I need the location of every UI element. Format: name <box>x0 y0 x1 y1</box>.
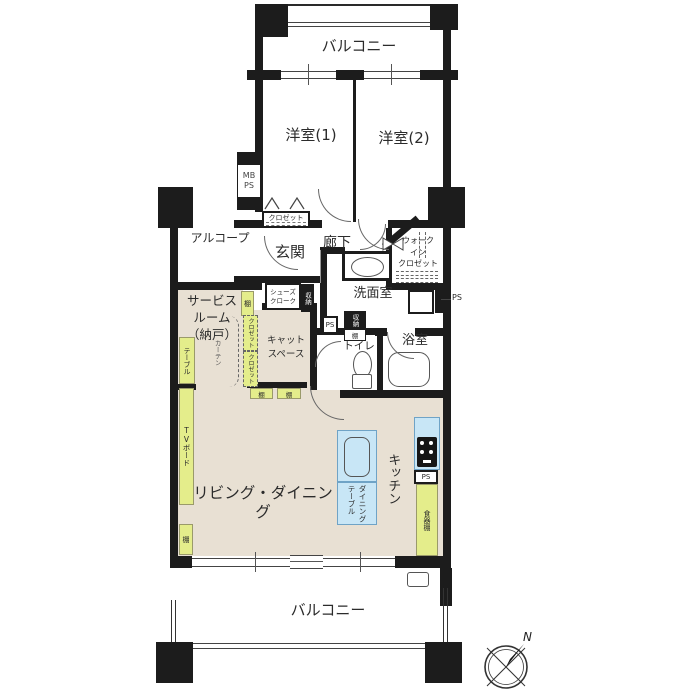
entrance-step-line <box>320 250 321 283</box>
hallway-label: 廊下 <box>312 235 362 253</box>
wall <box>247 70 281 80</box>
shelf-label: 棚 <box>286 389 293 399</box>
stove <box>417 437 437 467</box>
wall <box>255 4 288 37</box>
wall <box>170 225 178 285</box>
wall <box>336 70 364 80</box>
table-label: テーブル <box>182 347 192 375</box>
shelf-label: 棚 <box>352 330 359 340</box>
floor-plan: バルコニー MB PS クロゼ <box>0 0 690 690</box>
compass-n-label: N <box>523 630 532 644</box>
balcony-top-railing <box>288 22 430 27</box>
hanger-icon <box>289 197 305 210</box>
ps-duct-washroom <box>408 290 434 314</box>
bedroom2-label: 洋室(2) <box>360 129 448 148</box>
window-tick <box>255 552 256 572</box>
walk-in-closet-label: ウォーク イン クロゼット <box>393 235 443 270</box>
balcony-equipment <box>407 572 429 587</box>
ps-label: PS <box>422 473 431 481</box>
wall <box>310 220 322 228</box>
closet-dashed-line <box>266 222 306 226</box>
shelf-furniture: 棚 <box>277 388 301 399</box>
ps-label: PS <box>326 321 335 329</box>
wall <box>156 642 193 683</box>
wall <box>234 220 262 228</box>
wall <box>443 228 451 568</box>
entrance-label: 玄関 <box>264 243 316 262</box>
cupboard: 食器棚 <box>416 484 438 556</box>
wall <box>172 556 192 568</box>
burner <box>420 450 424 454</box>
cupboard-label: 食器棚 <box>422 510 432 531</box>
ps-duct-kitchen: PS <box>414 470 438 484</box>
shoe-cloak: シューズ クローク <box>265 283 301 310</box>
kitchen-sink <box>344 437 370 477</box>
wall <box>443 26 451 80</box>
storage-box: 収納 <box>344 311 366 329</box>
storage-box: 収納 <box>301 284 314 312</box>
washroom-label: 洗面室 <box>341 286 405 302</box>
window <box>364 71 420 79</box>
balcony-divider <box>171 600 176 642</box>
burner <box>429 441 433 445</box>
burner <box>429 450 433 454</box>
shoe-cloak-label: シューズ クローク <box>270 288 296 305</box>
mb-ps-label: MB PS <box>243 171 255 191</box>
door-arc-bedroom1 <box>318 189 351 222</box>
wic-dashed-shelf <box>396 278 438 283</box>
ps-leader-line <box>441 299 451 300</box>
service-room-label: サービス ルーム （納戸） <box>179 293 245 344</box>
living-dining-kitchen-floor <box>178 390 443 556</box>
wic-dashed-shelf <box>396 271 438 276</box>
ps-duct-corridor: PS <box>322 316 338 334</box>
shelf-label: 棚 <box>181 536 191 543</box>
hanger-icon <box>264 197 280 210</box>
dining-table: ダイニング テーブル <box>337 482 377 525</box>
wall <box>420 70 458 80</box>
closet-label: クロゼット <box>246 354 255 384</box>
sliding-door-line <box>290 561 323 562</box>
shelf-furniture: 棚 <box>250 388 273 399</box>
wall <box>170 282 262 290</box>
dining-table-label: ダイニング テーブル <box>346 485 368 523</box>
bedroom1-label: 洋室(1) <box>266 126 356 145</box>
wall <box>353 80 356 222</box>
closet-strip: クロゼット <box>243 351 258 387</box>
wall <box>428 187 465 228</box>
window-tick <box>391 64 392 85</box>
storage-label: 収納 <box>350 314 360 327</box>
balcony-bottom-label: バルコニー <box>268 601 388 620</box>
mb-ps-duct: MB PS <box>237 164 261 198</box>
sliding-door <box>290 555 323 569</box>
kitchen-label: キッチン <box>384 449 400 509</box>
alcove-label: アルコープ <box>182 231 258 246</box>
closet-label: クロゼット <box>246 318 255 348</box>
wall <box>435 283 443 313</box>
balcony-bottom-railing <box>193 643 425 649</box>
door-arc-toilet <box>315 341 341 367</box>
storage-label: 収納 <box>303 292 313 305</box>
wall <box>340 390 451 398</box>
sink-oval <box>351 257 384 277</box>
living-dining-label: リビング・ダイニング <box>188 484 338 523</box>
compass-icon: N <box>479 630 537 690</box>
balcony-divider <box>443 588 448 642</box>
burner <box>420 441 424 445</box>
balcony-top-label: バルコニー <box>300 37 418 56</box>
wall <box>158 187 193 228</box>
wall <box>425 642 462 683</box>
table-furniture: テーブル <box>179 337 195 384</box>
wall <box>237 198 263 210</box>
closet-strip: クロゼット <box>243 315 258 351</box>
window-tick <box>360 552 361 572</box>
wall <box>170 282 178 568</box>
wall <box>395 556 445 568</box>
stove-grill <box>423 460 431 463</box>
ps-label: PS <box>452 293 470 303</box>
tv-board-label: TVボード <box>181 426 192 467</box>
shelf-furniture: 棚 <box>179 524 193 555</box>
cat-space-label: キャット スペース <box>259 334 313 363</box>
window-tick <box>308 64 309 85</box>
wall <box>237 152 263 164</box>
toilet-tank <box>352 374 372 389</box>
shelf-label: 棚 <box>258 389 265 399</box>
